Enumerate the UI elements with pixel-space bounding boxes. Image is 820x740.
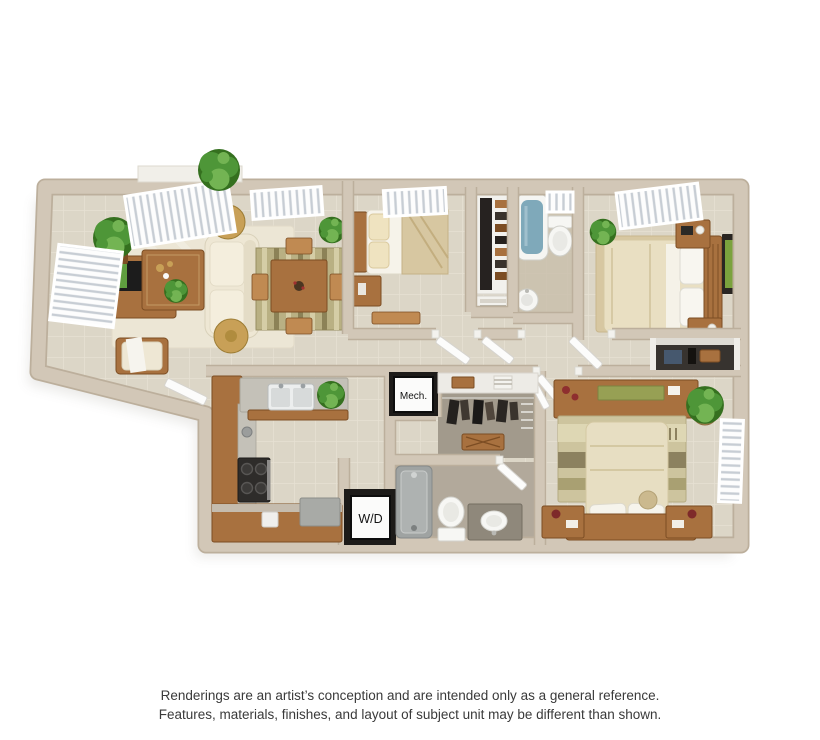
dishwasher bbox=[300, 498, 340, 526]
armchair bbox=[116, 337, 168, 374]
disclaimer-line-2: Features, materials, finishes, and layou… bbox=[0, 705, 820, 724]
bed3-nightstand-left bbox=[542, 506, 584, 538]
toilet-lower bbox=[438, 497, 465, 541]
floor-plan-page: Mech. W/D bbox=[0, 0, 820, 740]
kitchen-sink bbox=[268, 384, 314, 410]
mech-label: Mech. bbox=[400, 391, 427, 402]
stove bbox=[238, 458, 271, 502]
trash-bin bbox=[262, 512, 278, 527]
living-window-left bbox=[50, 244, 123, 327]
door-jamb bbox=[518, 330, 525, 338]
bedroom3-window bbox=[719, 420, 744, 503]
kitchen-cabinet-top-face bbox=[248, 410, 348, 420]
mech-closet: Mech. bbox=[389, 372, 438, 416]
dining-chair-west bbox=[252, 274, 268, 300]
paper-towel-holder bbox=[242, 427, 252, 437]
door-jamb bbox=[474, 330, 481, 338]
master-nightstand-top bbox=[676, 220, 710, 248]
wd-label: W/D bbox=[358, 512, 382, 526]
pedestal-sink bbox=[516, 289, 538, 311]
vanity-sink bbox=[468, 504, 522, 540]
closet-2 bbox=[476, 194, 510, 316]
disclaimer-line-1: Renderings are an artist’s conception an… bbox=[0, 686, 820, 705]
door-jamb bbox=[432, 330, 439, 338]
storage-box bbox=[452, 377, 474, 388]
bed2-bench bbox=[372, 312, 420, 324]
door-jamb bbox=[575, 367, 582, 375]
bathroom-window bbox=[547, 192, 573, 212]
disclaimer-text: Renderings are an artist’s conception an… bbox=[0, 686, 820, 724]
bathtub bbox=[516, 194, 548, 260]
washer-dryer-closet: W/D bbox=[344, 489, 396, 545]
dining-table bbox=[271, 260, 327, 312]
door-jamb bbox=[496, 456, 503, 464]
toilet-upper bbox=[548, 216, 572, 256]
bed3-nightstand-right bbox=[666, 506, 712, 538]
bed2-pillow bbox=[369, 242, 389, 268]
side-table-bottom-detail bbox=[225, 330, 237, 342]
bed2-nightstand bbox=[351, 276, 381, 306]
dresser bbox=[554, 380, 698, 418]
fern-plant bbox=[319, 217, 346, 244]
coffee-table bbox=[142, 250, 204, 310]
bedroom2-window bbox=[383, 187, 446, 216]
shower-stall bbox=[396, 466, 432, 538]
folded-towels bbox=[494, 376, 512, 389]
floor-plan-canvas: Mech. W/D bbox=[0, 0, 820, 740]
bed2-blanket bbox=[402, 210, 448, 274]
dining-area bbox=[252, 238, 346, 334]
master-plant bbox=[590, 219, 617, 246]
dining-chair-north bbox=[286, 238, 312, 254]
living-window-small bbox=[251, 187, 323, 220]
master-bedroom bbox=[590, 219, 738, 344]
closet-bench bbox=[462, 434, 504, 450]
door-jamb bbox=[608, 330, 615, 338]
dining-chair-south bbox=[286, 318, 312, 334]
kitchen-plant bbox=[317, 381, 345, 409]
master-closet bbox=[650, 338, 740, 370]
